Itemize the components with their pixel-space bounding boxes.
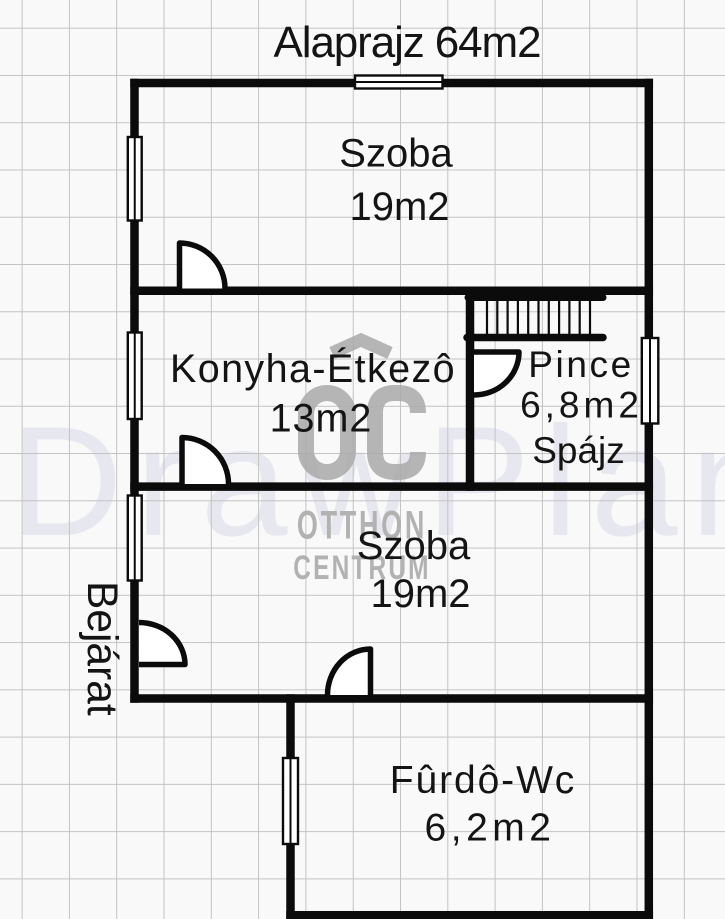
svg-text:Szoba: Szoba [339,131,453,175]
svg-text:Szoba: Szoba [357,524,471,568]
svg-text:Bejárat: Bejárat [78,581,125,716]
svg-text:19m2: 19m2 [370,572,470,616]
svg-text:Alaprajz 64m2: Alaprajz 64m2 [274,18,541,67]
svg-text:Spájz: Spájz [532,430,625,471]
svg-text:6,2m2: 6,2m2 [425,807,556,850]
svg-text:19m2: 19m2 [349,185,449,229]
svg-text:13m2: 13m2 [270,397,373,441]
svg-text:Fûrdô-Wc: Fûrdô-Wc [390,759,576,802]
svg-text:Konyha-Étkezô: Konyha-Étkezô [170,347,456,391]
svg-text:Pince: Pince [528,344,634,385]
svg-text:6,8m2: 6,8m2 [520,385,643,426]
